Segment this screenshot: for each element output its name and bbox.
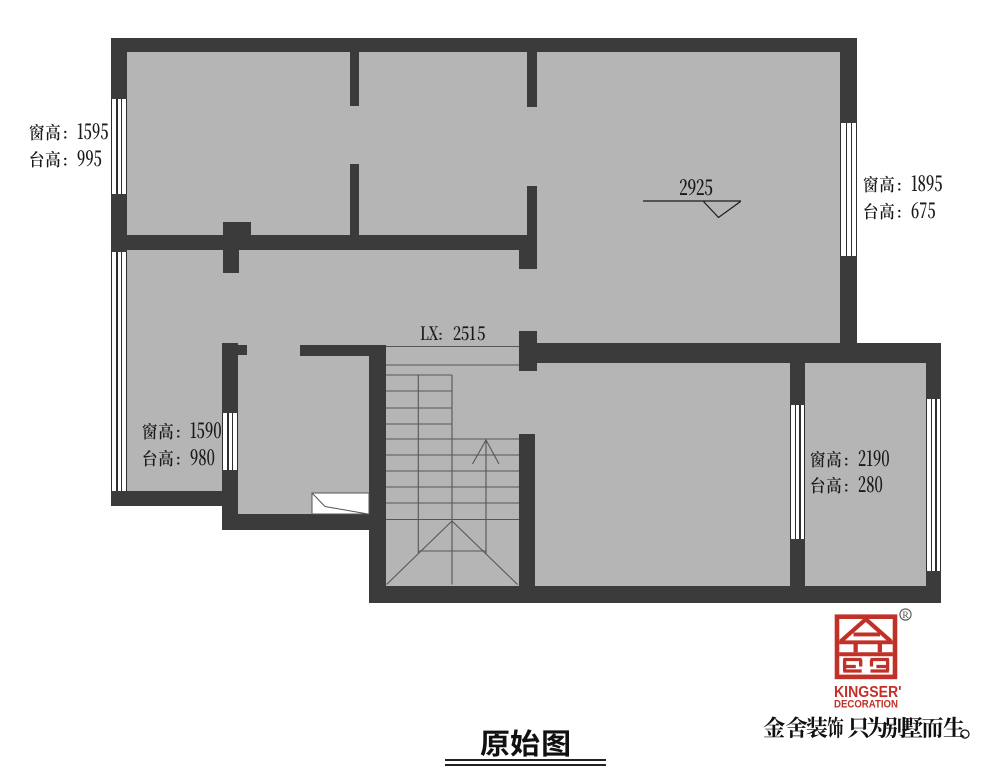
svg-text:DECORATION: DECORATION [834, 699, 898, 711]
svg-text:R: R [902, 611, 909, 621]
